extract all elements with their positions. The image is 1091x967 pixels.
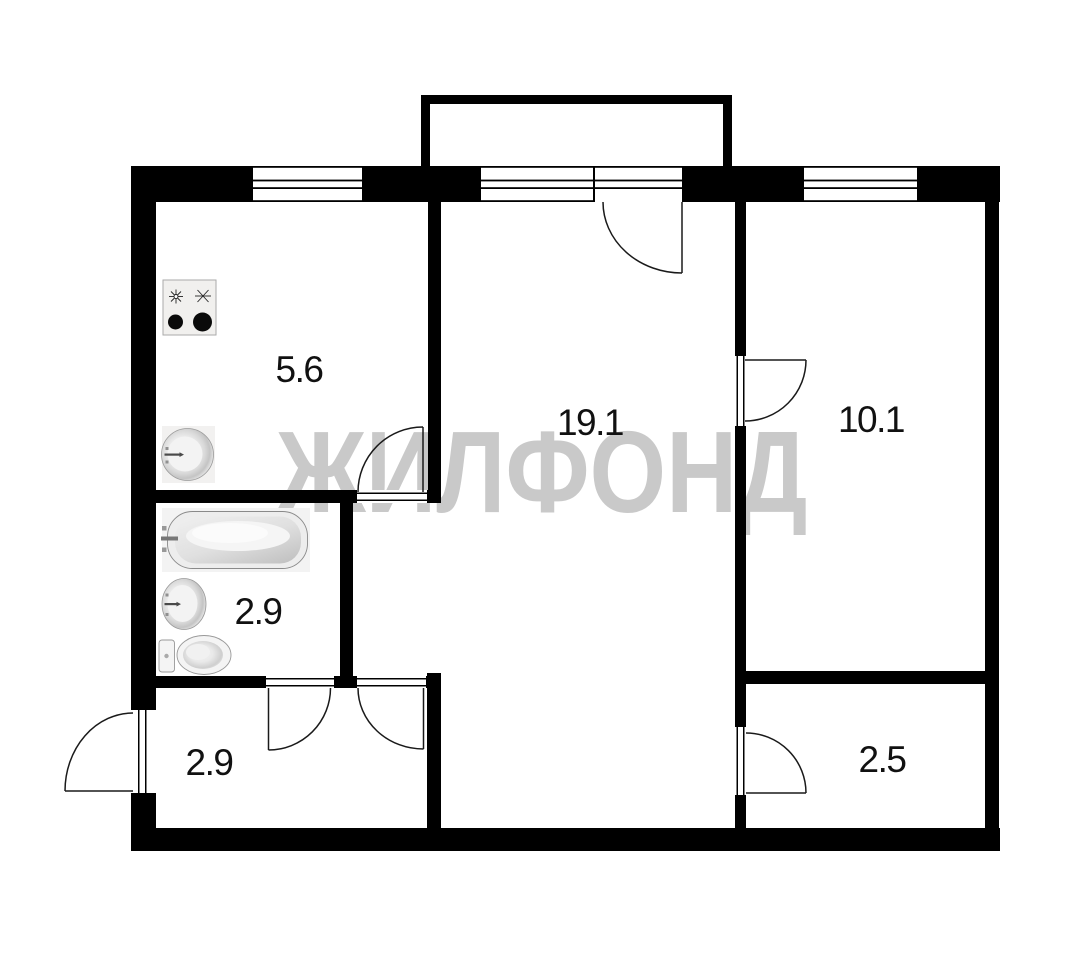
svg-text:2.9: 2.9 xyxy=(186,742,233,783)
svg-text:2.9: 2.9 xyxy=(235,591,282,632)
svg-text:10.1: 10.1 xyxy=(838,399,904,440)
svg-text:ЖИЛФОНД: ЖИЛФОНД xyxy=(276,407,808,536)
svg-text:5.6: 5.6 xyxy=(276,349,323,390)
svg-text:19.1: 19.1 xyxy=(557,402,623,443)
svg-text:2.5: 2.5 xyxy=(859,739,907,780)
